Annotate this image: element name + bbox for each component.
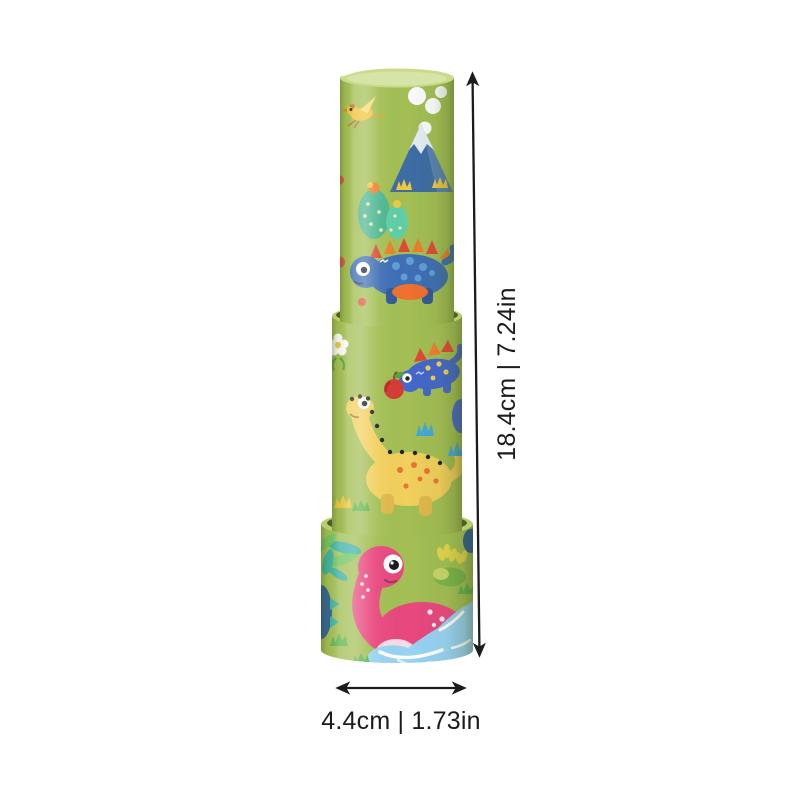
height-dimension-label: 18.4cm | 7.24in [493, 287, 521, 460]
width-dimension-label: 4.4cm | 1.73in [321, 707, 480, 735]
height-dimension-line [473, 74, 480, 655]
top-cap [340, 67, 454, 88]
product-dimension-image: 18.4cm | 7.24in 4.4cm | 1.73in [0, 0, 800, 800]
product-photo: 18.4cm | 7.24in 4.4cm | 1.73in [0, 0, 800, 800]
bottom-tube [310, 524, 479, 669]
top-tube [333, 67, 454, 328]
middle-tube [328, 316, 471, 542]
